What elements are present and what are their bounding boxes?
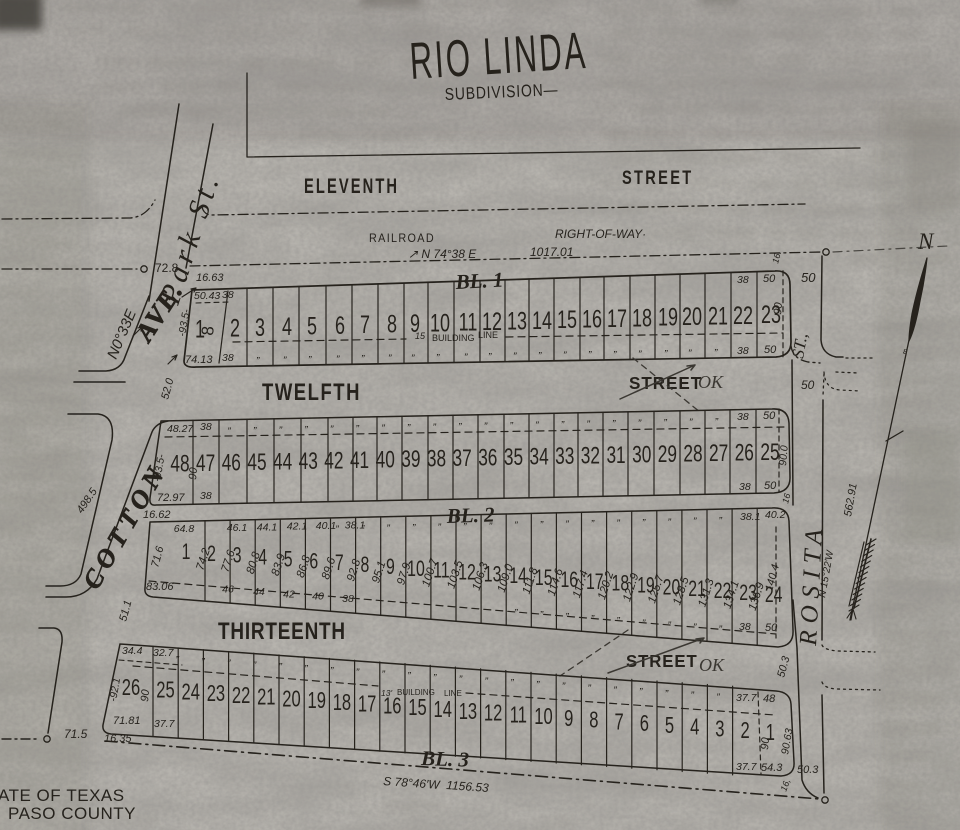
svg-text:16.63: 16.63 bbox=[196, 272, 224, 284]
svg-text:N: N bbox=[917, 229, 935, 254]
svg-text:71.81: 71.81 bbox=[113, 715, 141, 727]
svg-text:2: 2 bbox=[740, 719, 749, 744]
svg-text:„: „ bbox=[538, 344, 543, 356]
svg-text:22: 22 bbox=[733, 301, 753, 330]
svg-text:38: 38 bbox=[737, 411, 749, 423]
svg-text:54.3: 54.3 bbox=[761, 762, 783, 774]
svg-text:74.13: 74.13 bbox=[185, 354, 213, 366]
svg-text:44.1: 44.1 bbox=[257, 521, 277, 533]
svg-text:15: 15 bbox=[408, 696, 426, 721]
svg-text:44: 44 bbox=[253, 586, 265, 598]
svg-text:48: 48 bbox=[763, 693, 776, 705]
svg-text:„: „ bbox=[638, 412, 643, 424]
svg-text:18: 18 bbox=[632, 303, 652, 332]
svg-text:90.0: 90.0 bbox=[777, 445, 791, 467]
svg-text:71.5: 71.5 bbox=[64, 727, 88, 741]
svg-text:„: „ bbox=[616, 609, 621, 621]
svg-text:„: „ bbox=[356, 417, 361, 429]
svg-text:„: „ bbox=[279, 419, 284, 431]
svg-text:1: 1 bbox=[182, 541, 191, 565]
svg-text:12: 12 bbox=[484, 701, 502, 726]
svg-text:2: 2 bbox=[230, 314, 240, 343]
svg-text:BL. 1: BL. 1 bbox=[454, 268, 504, 295]
svg-text:35: 35 bbox=[504, 444, 523, 470]
svg-text:„: „ bbox=[304, 657, 309, 669]
svg-text:„: „ bbox=[693, 615, 698, 627]
svg-text:37.7: 37.7 bbox=[736, 692, 758, 704]
svg-text:„: „ bbox=[433, 666, 438, 678]
svg-text:„: „ bbox=[613, 678, 618, 690]
svg-text:„: „ bbox=[638, 342, 643, 354]
svg-text:4: 4 bbox=[282, 312, 292, 341]
svg-text:32: 32 bbox=[581, 443, 600, 469]
svg-text:„: „ bbox=[464, 345, 469, 357]
svg-text:37.7: 37.7 bbox=[154, 718, 176, 730]
svg-text:38: 38 bbox=[739, 621, 751, 633]
svg-text:40.1: 40.1 bbox=[316, 520, 336, 532]
svg-text:„: „ bbox=[565, 513, 570, 525]
svg-text:40: 40 bbox=[376, 447, 395, 473]
svg-text:19: 19 bbox=[658, 303, 678, 332]
svg-text:50: 50 bbox=[765, 622, 778, 634]
svg-text:40: 40 bbox=[312, 591, 324, 603]
svg-text:„: „ bbox=[565, 605, 570, 617]
svg-text:20: 20 bbox=[282, 687, 300, 712]
svg-text:„: „ bbox=[407, 664, 412, 676]
svg-text:„: „ bbox=[279, 655, 284, 667]
svg-text:42: 42 bbox=[324, 448, 343, 474]
svg-text:32.7: 32.7 bbox=[153, 647, 175, 659]
svg-text:„: „ bbox=[514, 601, 519, 613]
svg-text:38: 38 bbox=[737, 345, 749, 357]
svg-text:38: 38 bbox=[342, 593, 354, 605]
svg-text:37: 37 bbox=[453, 445, 472, 471]
svg-text:„: „ bbox=[514, 514, 519, 526]
svg-text:9: 9 bbox=[386, 556, 395, 580]
svg-text:24: 24 bbox=[181, 680, 199, 705]
svg-text:„: „ bbox=[667, 510, 672, 522]
svg-text:„: „ bbox=[613, 343, 618, 355]
svg-text:„: „ bbox=[330, 418, 335, 430]
svg-text:1156.53: 1156.53 bbox=[446, 778, 490, 795]
svg-text:50: 50 bbox=[763, 410, 776, 422]
svg-text:64.8: 64.8 bbox=[174, 523, 195, 535]
svg-text:„: „ bbox=[382, 662, 387, 674]
svg-text:„: „ bbox=[308, 348, 313, 360]
svg-text:LINE: LINE bbox=[444, 689, 462, 698]
svg-text:„: „ bbox=[642, 611, 647, 623]
svg-text:50: 50 bbox=[801, 270, 816, 285]
svg-text:50: 50 bbox=[764, 480, 777, 492]
svg-text:42.1: 42.1 bbox=[287, 521, 307, 533]
svg-text:RIO LINDA: RIO LINDA bbox=[408, 22, 589, 91]
svg-text:„: „ bbox=[176, 648, 181, 660]
svg-text:26: 26 bbox=[735, 440, 754, 466]
svg-text:„: „ bbox=[407, 416, 412, 428]
svg-text:„: „ bbox=[411, 346, 416, 358]
svg-text:38: 38 bbox=[427, 446, 446, 472]
svg-text:38: 38 bbox=[222, 289, 234, 301]
svg-text:„: „ bbox=[381, 417, 386, 429]
svg-text:„: „ bbox=[535, 414, 540, 426]
svg-text:43: 43 bbox=[299, 448, 318, 474]
svg-text:46: 46 bbox=[222, 583, 234, 595]
svg-text:90: 90 bbox=[187, 466, 200, 480]
svg-text:ATE OF TEXAS: ATE OF TEXAS bbox=[0, 786, 125, 805]
svg-text:„: „ bbox=[664, 342, 669, 354]
svg-text:21: 21 bbox=[708, 301, 728, 330]
svg-text:„: „ bbox=[388, 347, 393, 359]
svg-text:5: 5 bbox=[307, 312, 317, 341]
svg-text:13: 13 bbox=[507, 306, 527, 335]
svg-text:„: „ bbox=[714, 341, 719, 353]
svg-text:„: „ bbox=[335, 518, 340, 530]
svg-text:38.1: 38.1 bbox=[740, 511, 760, 523]
svg-text:72.97: 72.97 bbox=[157, 492, 185, 504]
svg-text:21: 21 bbox=[257, 685, 275, 710]
svg-text:3: 3 bbox=[715, 717, 724, 742]
svg-text:10: 10 bbox=[534, 705, 552, 730]
svg-text:8: 8 bbox=[198, 325, 218, 336]
svg-text:THIRTEENTH: THIRTEENTH bbox=[218, 617, 346, 645]
svg-text:„: „ bbox=[253, 653, 258, 665]
svg-text:22: 22 bbox=[232, 683, 250, 708]
svg-text:RAILROAD: RAILROAD bbox=[369, 233, 435, 246]
svg-text:39: 39 bbox=[401, 446, 420, 472]
svg-text:17: 17 bbox=[607, 304, 627, 333]
svg-text:„: „ bbox=[256, 349, 261, 361]
svg-text:„: „ bbox=[227, 652, 232, 664]
svg-text:1017.01: 1017.01 bbox=[530, 245, 573, 259]
svg-text:40.2: 40.2 bbox=[765, 509, 786, 521]
svg-text:„: „ bbox=[485, 669, 490, 681]
svg-text:„: „ bbox=[436, 346, 441, 358]
svg-text:15: 15 bbox=[557, 305, 577, 334]
svg-text:46: 46 bbox=[222, 450, 241, 476]
svg-text:38: 38 bbox=[200, 490, 212, 502]
svg-text:13: 13 bbox=[459, 699, 477, 724]
svg-text:4: 4 bbox=[690, 715, 699, 740]
svg-text:„: „ bbox=[459, 668, 464, 680]
svg-text:„: „ bbox=[488, 345, 493, 357]
svg-text:6: 6 bbox=[335, 311, 345, 340]
svg-text:50: 50 bbox=[801, 378, 815, 392]
svg-text:6: 6 bbox=[640, 712, 649, 737]
svg-text:44: 44 bbox=[273, 449, 293, 475]
svg-text:50: 50 bbox=[763, 273, 776, 285]
svg-text:31: 31 bbox=[606, 442, 625, 468]
svg-text:„: „ bbox=[691, 684, 696, 696]
svg-text:„: „ bbox=[489, 514, 494, 526]
svg-text:„: „ bbox=[438, 515, 443, 527]
svg-text:41: 41 bbox=[350, 447, 369, 473]
svg-text:34.4: 34.4 bbox=[122, 645, 143, 657]
svg-text:7: 7 bbox=[360, 310, 370, 339]
svg-text:7: 7 bbox=[614, 710, 623, 735]
svg-text:23: 23 bbox=[207, 682, 225, 707]
svg-text:36: 36 bbox=[478, 445, 497, 471]
svg-text:28: 28 bbox=[683, 441, 702, 467]
svg-text:„: „ bbox=[412, 516, 417, 528]
svg-text:45: 45 bbox=[247, 449, 266, 475]
svg-text:29: 29 bbox=[658, 441, 677, 467]
svg-text:„: „ bbox=[719, 509, 724, 521]
svg-text:16.35: 16.35 bbox=[104, 733, 132, 745]
svg-text:83.06: 83.06 bbox=[146, 581, 174, 593]
svg-text:„: „ bbox=[665, 682, 670, 694]
svg-text:26: 26 bbox=[122, 676, 140, 701]
svg-text:9: 9 bbox=[564, 706, 573, 731]
svg-text:„: „ bbox=[642, 511, 647, 523]
svg-text:46.1: 46.1 bbox=[227, 522, 247, 534]
svg-text:27: 27 bbox=[709, 440, 728, 466]
svg-text:„: „ bbox=[562, 675, 567, 687]
svg-text:„: „ bbox=[283, 349, 288, 361]
svg-text:„: „ bbox=[715, 410, 720, 422]
svg-text:20: 20 bbox=[682, 302, 702, 331]
svg-text:„: „ bbox=[201, 650, 206, 662]
svg-text:„: „ bbox=[616, 511, 621, 523]
svg-text:„: „ bbox=[563, 344, 568, 356]
svg-text:48.27: 48.27 bbox=[167, 423, 194, 435]
svg-text:„: „ bbox=[693, 510, 698, 522]
svg-text:90: 90 bbox=[139, 688, 152, 702]
svg-text:50.43: 50.43 bbox=[194, 290, 220, 302]
svg-text:90: 90 bbox=[772, 301, 785, 315]
svg-text:42: 42 bbox=[283, 588, 295, 600]
svg-text:14: 14 bbox=[433, 697, 451, 722]
svg-text:„: „ bbox=[336, 348, 341, 360]
svg-text:„: „ bbox=[536, 673, 541, 685]
svg-text:„: „ bbox=[540, 603, 545, 615]
svg-text:90: 90 bbox=[759, 736, 772, 750]
svg-text:ε: ε bbox=[903, 346, 907, 357]
svg-text:17: 17 bbox=[358, 692, 376, 717]
svg-text:OK: OK bbox=[699, 655, 725, 675]
svg-text:38: 38 bbox=[222, 352, 234, 364]
svg-text:„: „ bbox=[540, 513, 545, 525]
svg-text:„: „ bbox=[639, 680, 644, 692]
svg-text:8: 8 bbox=[387, 310, 397, 339]
svg-text:BUILDING: BUILDING bbox=[432, 333, 475, 343]
svg-text:„: „ bbox=[591, 607, 596, 619]
svg-text:18: 18 bbox=[333, 690, 351, 715]
svg-text:3: 3 bbox=[255, 313, 265, 342]
svg-text:„: „ bbox=[227, 420, 232, 432]
svg-text:„: „ bbox=[561, 413, 566, 425]
svg-text:„: „ bbox=[253, 419, 258, 431]
svg-text:„: „ bbox=[361, 517, 366, 529]
svg-text:STREET: STREET bbox=[622, 167, 694, 188]
svg-text:„: „ bbox=[689, 411, 694, 423]
svg-text:„: „ bbox=[667, 613, 672, 625]
svg-text:„: „ bbox=[361, 347, 366, 359]
svg-text:BUILDING: BUILDING bbox=[397, 688, 435, 697]
svg-text:38: 38 bbox=[739, 481, 751, 493]
svg-text:OK: OK bbox=[698, 372, 724, 392]
svg-text:TWELFTH: TWELFTH bbox=[262, 379, 361, 406]
svg-text:72.8: 72.8 bbox=[155, 261, 179, 275]
svg-text:8: 8 bbox=[589, 708, 598, 733]
svg-text:„: „ bbox=[591, 512, 596, 524]
svg-text:„: „ bbox=[386, 517, 391, 529]
svg-text:„: „ bbox=[458, 415, 463, 427]
svg-text:„: „ bbox=[484, 415, 489, 427]
svg-text:PASO COUNTY: PASO COUNTY bbox=[8, 804, 136, 823]
svg-text:50: 50 bbox=[764, 344, 777, 356]
svg-text:25: 25 bbox=[156, 678, 174, 703]
svg-text:„: „ bbox=[719, 617, 724, 629]
svg-text:„: „ bbox=[510, 671, 515, 683]
svg-text:16.62: 16.62 bbox=[143, 509, 171, 521]
svg-text:37.7: 37.7 bbox=[736, 761, 758, 773]
svg-text:„: „ bbox=[586, 413, 591, 425]
svg-text:15: 15 bbox=[415, 331, 426, 341]
svg-text:„: „ bbox=[716, 685, 721, 697]
svg-text:„: „ bbox=[588, 343, 593, 355]
svg-text:5: 5 bbox=[665, 713, 674, 738]
svg-text:50.3: 50.3 bbox=[797, 764, 819, 776]
svg-text:33: 33 bbox=[555, 443, 574, 469]
svg-text:ELEVENTH: ELEVENTH bbox=[304, 174, 399, 197]
svg-text:„: „ bbox=[330, 659, 335, 671]
svg-text:↗ N 74°38 E: ↗ N 74°38 E bbox=[408, 247, 477, 261]
svg-text:19: 19 bbox=[307, 689, 325, 714]
svg-text:„: „ bbox=[356, 661, 361, 673]
svg-text:RIGHT-OF-WAY·: RIGHT-OF-WAY· bbox=[555, 227, 646, 241]
svg-text:„: „ bbox=[433, 416, 438, 428]
svg-text:„: „ bbox=[588, 677, 593, 689]
svg-text:38: 38 bbox=[200, 421, 212, 433]
svg-text:„: „ bbox=[663, 411, 668, 423]
svg-text:„: „ bbox=[513, 345, 518, 357]
svg-text:„: „ bbox=[463, 515, 468, 527]
svg-text:LINE: LINE bbox=[478, 330, 498, 340]
svg-text:30: 30 bbox=[632, 442, 651, 468]
svg-text:38: 38 bbox=[737, 274, 749, 286]
svg-text:14: 14 bbox=[532, 306, 552, 335]
svg-text:16: 16 bbox=[582, 305, 602, 334]
svg-text:„: „ bbox=[304, 418, 309, 430]
svg-text:34: 34 bbox=[529, 444, 549, 470]
svg-text:„: „ bbox=[688, 341, 693, 353]
svg-text:„: „ bbox=[509, 414, 514, 426]
svg-text:13': 13' bbox=[381, 688, 392, 698]
svg-text:„: „ bbox=[612, 412, 617, 424]
svg-text:11: 11 bbox=[510, 703, 527, 728]
